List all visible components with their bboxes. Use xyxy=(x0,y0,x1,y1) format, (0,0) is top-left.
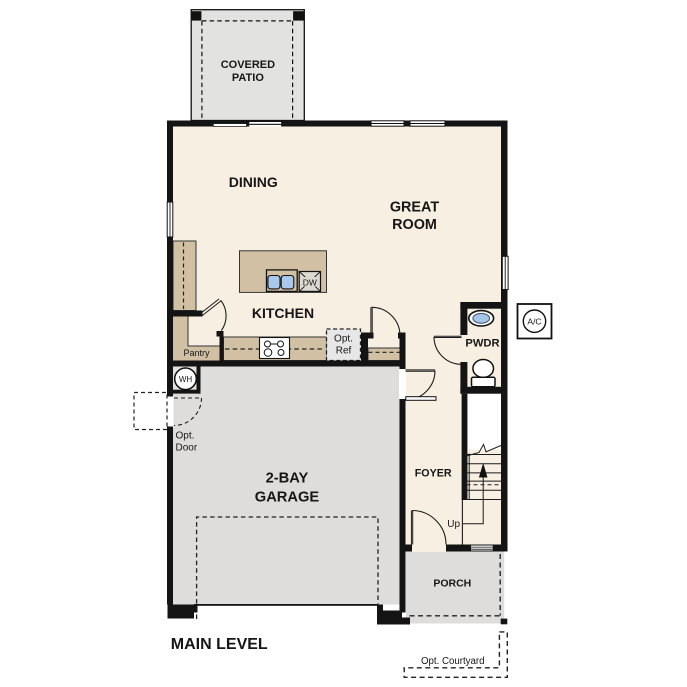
svg-text:Door: Door xyxy=(176,443,198,454)
svg-text:Opt. Courtyard: Opt. Courtyard xyxy=(421,656,485,667)
svg-text:FOYER: FOYER xyxy=(415,467,452,479)
svg-text:Pantry: Pantry xyxy=(184,348,211,358)
svg-text:DW: DW xyxy=(303,278,317,288)
svg-text:PORCH: PORCH xyxy=(433,578,471,590)
svg-text:PWDR: PWDR xyxy=(465,338,499,350)
svg-text:ROOM: ROOM xyxy=(392,217,437,233)
svg-text:Up: Up xyxy=(447,519,460,530)
svg-text:Opt.: Opt. xyxy=(176,431,195,442)
svg-text:GREAT: GREAT xyxy=(390,200,440,216)
svg-text:PATIO: PATIO xyxy=(232,72,264,84)
svg-text:GARAGE: GARAGE xyxy=(255,490,320,506)
svg-text:Opt.: Opt. xyxy=(334,334,353,345)
svg-text:A/C: A/C xyxy=(527,316,541,326)
svg-text:Ref: Ref xyxy=(336,346,352,357)
svg-text:DINING: DINING xyxy=(229,174,278,190)
svg-text:2-BAY: 2-BAY xyxy=(266,470,309,486)
svg-text:WH: WH xyxy=(179,375,193,384)
svg-text:MAIN LEVEL: MAIN LEVEL xyxy=(171,636,268,653)
svg-text:COVERED: COVERED xyxy=(221,59,275,71)
svg-text:KITCHEN: KITCHEN xyxy=(252,305,314,321)
